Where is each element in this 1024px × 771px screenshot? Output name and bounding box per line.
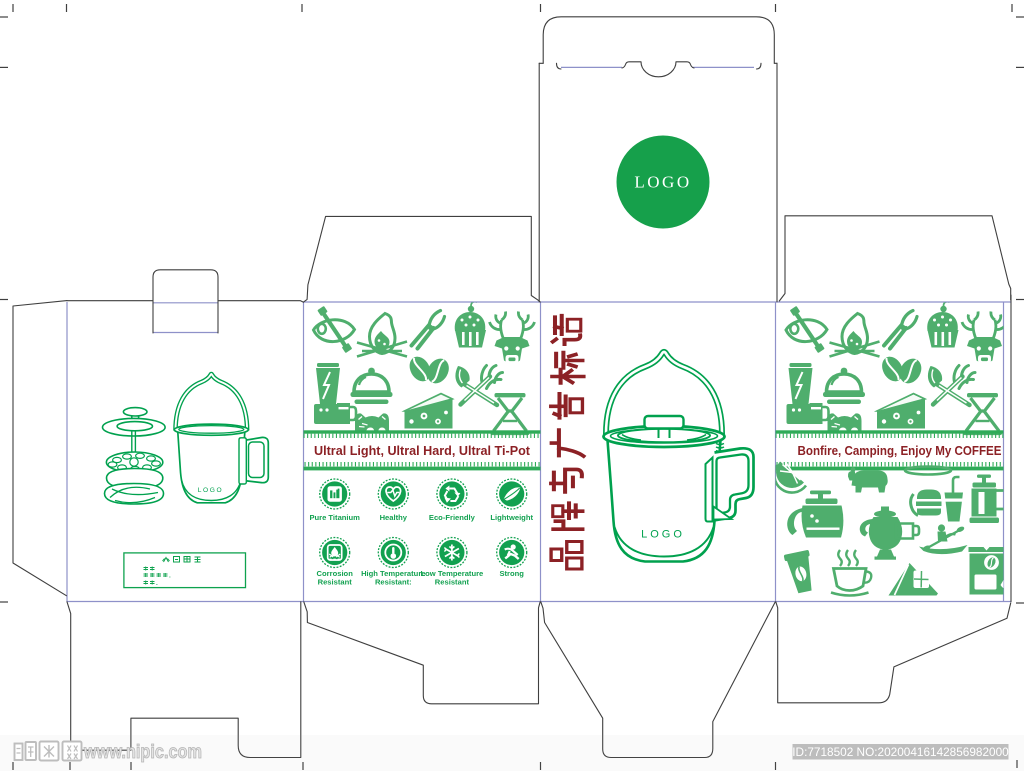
- svg-text:Ultral Light, Ultral Hard, Ult: Ultral Light, Ultral Hard, Ultral Ti-Pot: [314, 444, 531, 458]
- svg-text:Resistant: Resistant: [435, 578, 470, 587]
- svg-text:Lightweight: Lightweight: [490, 513, 533, 522]
- svg-text:Pure Titanium: Pure Titanium: [309, 513, 360, 522]
- svg-text:Eco-Friendly: Eco-Friendly: [429, 513, 476, 522]
- svg-text:LOGO: LOGO: [634, 173, 691, 192]
- svg-text:Resistant:: Resistant:: [375, 578, 412, 587]
- svg-text:Resistant: Resistant: [318, 578, 353, 587]
- svg-text:Healthy: Healthy: [380, 513, 408, 522]
- svg-text:Strong: Strong: [499, 569, 524, 578]
- svg-text:LOGO: LOGO: [641, 529, 685, 541]
- svg-text:ID:7718502 NO:2020041614285698: ID:7718502 NO:20200416142856982000: [792, 745, 1009, 759]
- svg-text:www.nipic.com: www.nipic.com: [83, 741, 202, 763]
- svg-text:LOGO: LOGO: [198, 487, 223, 494]
- svg-text:Bonfire, Camping, Enjoy My COF: Bonfire, Camping, Enjoy My COFFEE: [798, 444, 1002, 458]
